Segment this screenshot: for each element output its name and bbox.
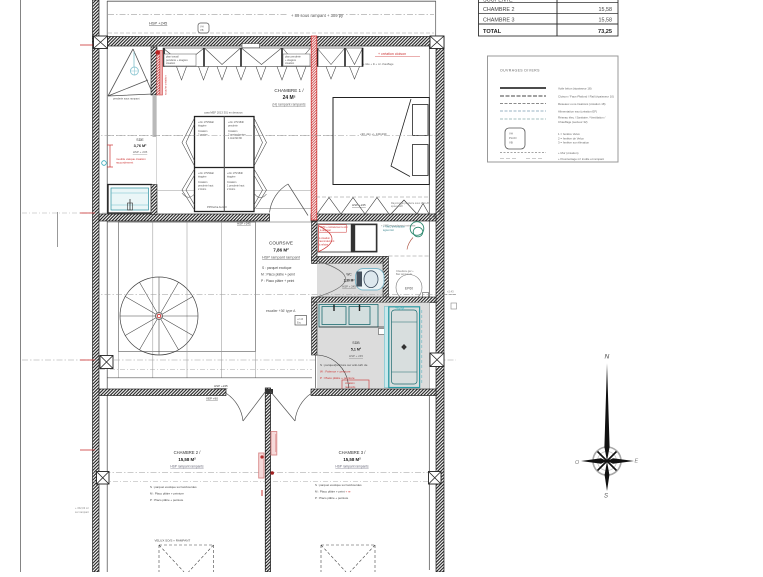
svg-text:15,58: 15,58 — [599, 17, 613, 23]
svg-text:penderie: penderie — [228, 124, 238, 127]
svg-text:CHAMBRE 3: CHAMBRE 3 — [483, 17, 514, 23]
svg-text:Bac tampon du: Bac tampon du — [396, 273, 413, 276]
svg-text:SDE: SDE — [136, 138, 144, 142]
svg-text:HSP +245: HSP +245 — [237, 222, 251, 226]
svg-text:+ VMC d'extraction: + VMC d'extraction — [383, 225, 405, 229]
svg-text:15,58 M²: 15,58 M² — [343, 457, 361, 462]
svg-text:création: création — [345, 381, 355, 385]
svg-text:VB: VB — [509, 141, 513, 145]
svg-text:épées 128: épées 128 — [391, 205, 403, 208]
svg-text:2 tiroirs: 2 tiroirs — [227, 188, 236, 191]
svg-text:M : Placo plâtre + peint: M : Placo plâtre + peint — [261, 273, 295, 277]
svg-text:étagère: étagère — [198, 124, 207, 127]
svg-text:3,76 M²: 3,76 M² — [134, 144, 148, 148]
svg-text:COURSIVE: COURSIVE — [269, 241, 293, 246]
svg-text:S : parquet exotique sur lamb: S : parquet exotique sur lambourdes — [150, 485, 197, 489]
svg-text:raccordement: raccordement — [116, 161, 133, 165]
svg-text:P : Placo plâtre + peinture: P : Placo plâtre + peinture — [315, 496, 349, 500]
svg-text:24 M²: 24 M² — [283, 95, 296, 101]
svg-text:à refaire: à refaire — [319, 243, 329, 246]
svg-text:PPPacha ALIAO: PPPacha ALIAO — [207, 205, 227, 209]
svg-text:S : parquet exotique: S : parquet exotique — [262, 266, 292, 270]
svg-text:VB: VB — [200, 28, 204, 32]
svg-text:15,58 M²: 15,58 M² — [178, 457, 196, 462]
svg-text:EP60: EP60 — [405, 287, 413, 291]
svg-text:W : Faïence + peinture: W : Faïence + peinture — [320, 370, 351, 374]
svg-text:création: création — [166, 61, 176, 65]
svg-text:2 pentes: 2 pentes — [198, 133, 208, 136]
svg-text:15,58: 15,58 — [599, 7, 613, 13]
svg-text:S : parquet/peinture sur anti: S : parquet/peinture sur anti-turb de — [320, 363, 368, 367]
svg-text:étagère: étagère — [227, 175, 236, 178]
svg-text:VELUX SO/S + RAMPANT: VELUX SO/S + RAMPANT — [155, 539, 191, 543]
svg-text:HSP + 245: HSP + 245 — [349, 354, 363, 358]
svg-text:+ 89 sous rampant + 309 py: + 89 sous rampant + 309 py — [291, 13, 344, 18]
svg-text:Voile béton (épaisseur 18): Voile béton (épaisseur 18) — [558, 87, 592, 91]
svg-text:CHAMBRE 1 /: CHAMBRE 1 / — [274, 88, 304, 93]
svg-text:raccords: raccords — [345, 385, 356, 389]
svg-text:création: création — [285, 61, 295, 65]
svg-text:OUVRAGES DIVERS: OUVRAGES DIVERS — [500, 69, 540, 73]
svg-text:WC: WC — [346, 273, 352, 277]
svg-text:à déposer: à déposer — [320, 229, 331, 232]
svg-text:1 tiroir/90 80: 1 tiroir/90 80 — [228, 137, 243, 140]
svg-text:PLCD: PLCD — [509, 136, 516, 140]
svg-text:Cloison / Faux-Plafond / Rail: Cloison / Faux-Plafond / Rail (épaisseur… — [558, 95, 614, 99]
svg-text:+2.43: +2.43 — [297, 318, 304, 321]
svg-text:souche création: souche création — [164, 75, 168, 95]
svg-text:M : Placo plâtre + peinture: M : Placo plâtre + peinture — [150, 492, 184, 496]
svg-text:Chauffage (secteur 32): Chauffage (secteur 32) — [558, 120, 588, 124]
svg-text:VH: VH — [200, 25, 204, 29]
svg-text:+ Mur (création): + Mur (création) — [558, 151, 579, 155]
svg-text:78x98: 78x98 — [395, 307, 404, 311]
svg-text:HSP +245: HSP +245 — [352, 203, 366, 207]
svg-text:casa MEF 2013 301 en dessous: casa MEF 2013 301 en dessous — [204, 111, 243, 115]
svg-text:étagère: étagère — [198, 175, 207, 178]
svg-text:CHAMBRE 3 /: CHAMBRE 3 / — [339, 450, 367, 455]
svg-text:+ création cloison: + création cloison — [378, 52, 406, 56]
svg-text:SDB: SDB — [352, 341, 360, 345]
svg-text:HSP +245: HSP +245 — [214, 384, 228, 388]
svg-text:S: S — [604, 494, 608, 500]
svg-text:Réseaux ou à créations (créati: Réseaux ou à créations (création 18) — [558, 102, 605, 106]
svg-text:P : Placo plâtre + peint: P : Placo plâtre + peint — [261, 279, 294, 283]
svg-text:CHAMBRE 2 /: CHAMBRE 2 / — [174, 450, 202, 455]
svg-text:HSP +245: HSP +245 — [149, 21, 168, 26]
svg-text:SOUPENTE: SOUPENTE — [483, 0, 513, 4]
svg-text:VEP +90: VEP +90 — [206, 397, 218, 401]
svg-text:+ Pourcentage m² inutile et ra: + Pourcentage m² inutile et rampant — [558, 157, 604, 161]
svg-text:HSP + 245: HSP + 245 — [133, 150, 148, 154]
svg-text:+ tête + lit + m² chauffage: + tête + lit + m² chauffage — [363, 62, 394, 66]
svg-text:penderie sous rampant: penderie sous rampant — [113, 97, 140, 101]
svg-text:1,30 M²: 1,30 M² — [344, 279, 355, 283]
svg-text:E: E — [635, 459, 639, 465]
svg-text:escalier +36' type A: escalier +36' type A — [266, 309, 296, 313]
svg-text:sur rampant: sur rampant — [75, 510, 89, 514]
svg-text:73,25: 73,25 — [598, 29, 612, 35]
svg-text:7,86 M²: 7,86 M² — [273, 248, 289, 253]
svg-text:HSP rampant rampants: HSP rampant rampants — [170, 465, 204, 469]
svg-text:3 = fenêtre sur élévation: 3 = fenêtre sur élévation — [558, 141, 589, 145]
svg-text:HSP rampant rampants: HSP rampant rampants — [335, 465, 369, 469]
svg-text:N: N — [605, 354, 610, 361]
svg-text:(H) rampant rampants: (H) rampant rampants — [272, 103, 305, 107]
svg-text:CHAMBRE 2: CHAMBRE 2 — [483, 7, 514, 13]
svg-text:égout toit: égout toit — [383, 228, 394, 232]
svg-text:TOTAL: TOTAL — [483, 29, 502, 35]
svg-text:P : Placo plâtre + peinture: P : Placo plâtre + peinture — [320, 376, 355, 380]
svg-text:5,1 M²: 5,1 M² — [351, 348, 362, 352]
svg-text:S : parquet exotique sur lamb: S : parquet exotique sur lambourdes — [315, 483, 362, 487]
svg-text:Alimentation eau (création EF): Alimentation eau (création EF) — [558, 110, 597, 114]
svg-text:+ 152,03 m²: + 152,03 m² — [75, 506, 89, 510]
svg-text:P : Placo plâtre + peinture: P : Placo plâtre + peinture — [150, 498, 184, 502]
svg-text:HSP + 245: HSP + 245 — [342, 285, 356, 289]
svg-text:M : Placo plâtre + peint + re: M : Placo plâtre + peint + re — [315, 490, 351, 494]
svg-text:+2.43: +2.43 — [447, 290, 454, 294]
svg-text:HSP rampant rampant: HSP rampant rampant — [262, 256, 301, 260]
svg-text:VH: VH — [509, 132, 513, 136]
svg-text:2 tiroirs: 2 tiroirs — [198, 188, 207, 191]
